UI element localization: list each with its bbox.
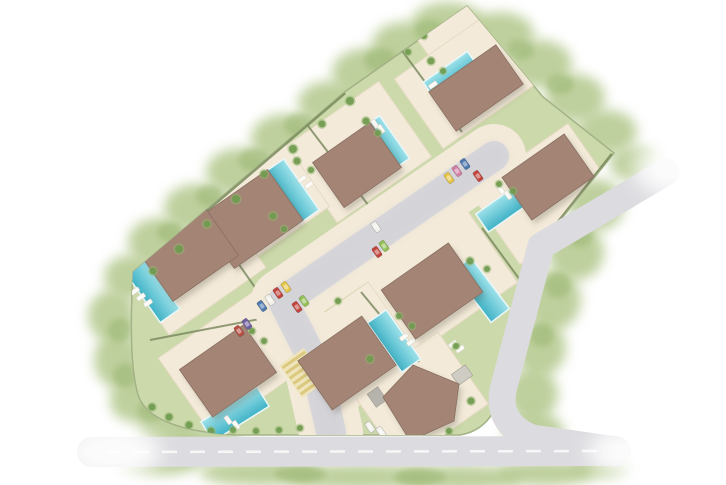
vegetation-spot	[545, 272, 571, 298]
shrub	[440, 68, 446, 74]
site-plan-svg	[0, 0, 726, 485]
shrub	[367, 356, 374, 363]
shrub	[453, 343, 459, 349]
shrub	[150, 268, 157, 275]
shrub	[253, 428, 259, 434]
shrub	[496, 181, 502, 187]
shrub	[166, 414, 173, 421]
shrub	[261, 338, 267, 344]
shrub	[446, 428, 452, 434]
shrub	[289, 145, 297, 153]
shrub	[175, 245, 183, 253]
shrub	[467, 258, 474, 265]
shrub	[297, 425, 303, 431]
shrub	[149, 404, 156, 411]
shrub	[294, 158, 301, 165]
site-plan-image	[0, 0, 726, 485]
shrub	[319, 121, 326, 128]
edge-fade	[64, 424, 160, 480]
shrub	[308, 167, 314, 173]
vegetation-spot	[546, 74, 574, 94]
shrub	[484, 266, 490, 272]
shrub	[409, 323, 415, 329]
shrub	[405, 49, 411, 55]
shrub	[363, 118, 370, 125]
shrub	[232, 195, 240, 203]
vegetation-spot	[274, 466, 326, 482]
shrub	[276, 427, 282, 433]
shrub	[428, 58, 435, 65]
shrub	[204, 221, 211, 228]
edge-fade	[634, 140, 718, 196]
shrub	[396, 313, 402, 319]
edge-fade	[588, 426, 692, 478]
shrub	[335, 298, 341, 304]
shrub	[468, 398, 475, 405]
vegetation-spot	[394, 469, 446, 485]
shrub	[281, 226, 287, 232]
vegetation-spot	[108, 318, 132, 342]
shrub	[510, 188, 516, 194]
shrub	[261, 171, 268, 178]
shrub	[375, 130, 381, 136]
shrub	[186, 422, 193, 429]
shrub	[270, 213, 277, 220]
shrub	[230, 427, 236, 433]
shrub	[346, 97, 354, 105]
